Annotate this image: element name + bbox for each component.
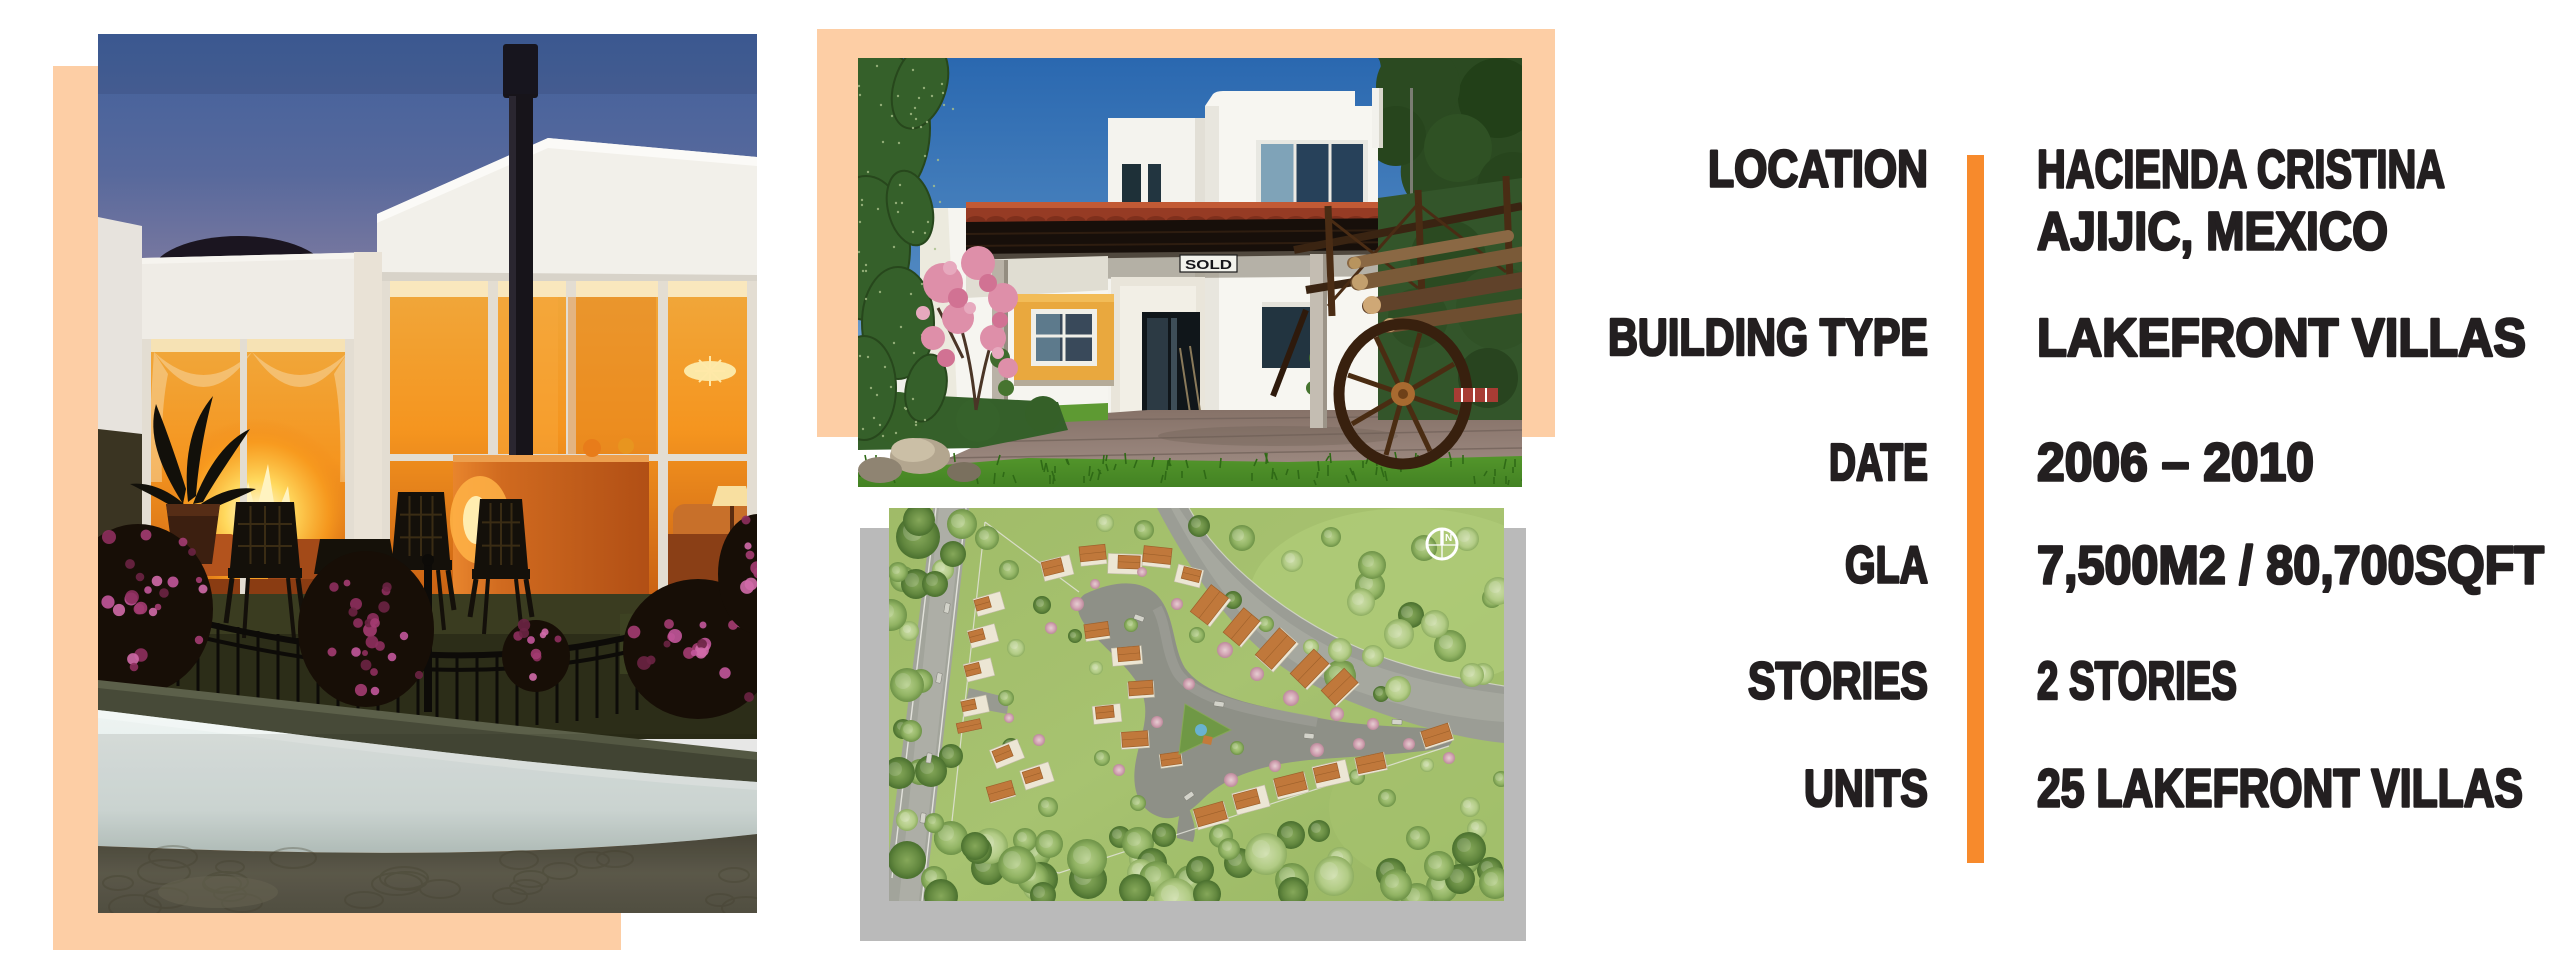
svg-text:2 STORIES: 2 STORIES bbox=[2037, 651, 2237, 711]
svg-text:25 LAKEFRONT VILLAS: 25 LAKEFRONT VILLAS bbox=[2037, 759, 2523, 819]
svg-text:STORIES: STORIES bbox=[1748, 653, 1928, 711]
svg-text:HACIENDA CRISTINA: HACIENDA CRISTINA bbox=[2037, 140, 2445, 200]
svg-text:GLA: GLA bbox=[1845, 537, 1928, 595]
svg-text:BUILDING TYPE: BUILDING TYPE bbox=[1608, 309, 1928, 367]
svg-text:LAKEFRONT VILLAS: LAKEFRONT VILLAS bbox=[2037, 308, 2526, 368]
svg-text:LOCATION: LOCATION bbox=[1708, 141, 1928, 199]
svg-text:7,500M2 / 80,700SQFT: 7,500M2 / 80,700SQFT bbox=[2037, 536, 2544, 596]
svg-text:UNITS: UNITS bbox=[1804, 760, 1928, 818]
svg-text:2006 – 2010: 2006 – 2010 bbox=[2037, 433, 2314, 493]
svg-text:AJIJIC, MEXICO: AJIJIC, MEXICO bbox=[2037, 202, 2388, 262]
svg-text:DATE: DATE bbox=[1829, 434, 1928, 492]
